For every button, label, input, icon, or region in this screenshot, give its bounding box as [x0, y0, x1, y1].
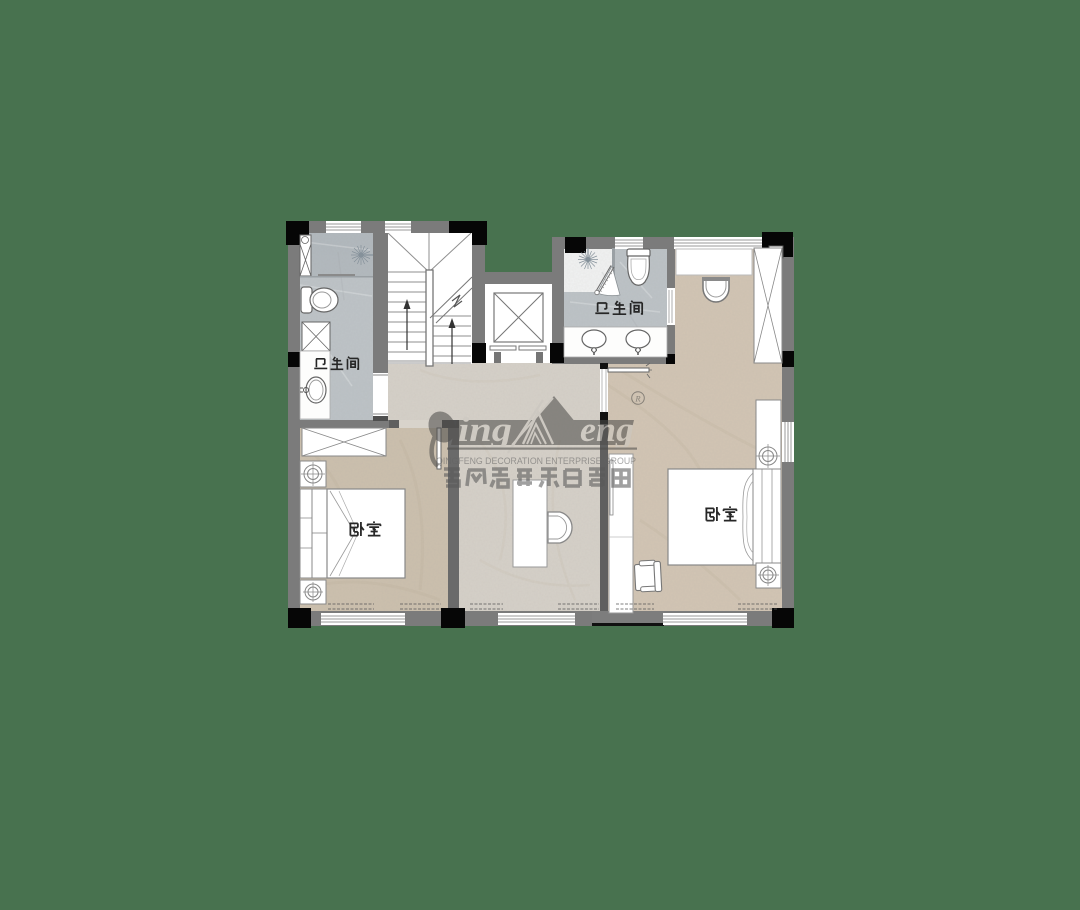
svg-text:QINGFENG DECORATION ENTERPRI: QINGFENG DECORATION ENTERPRISE GROUP — [436, 456, 636, 467]
svg-text:ing: ing — [458, 410, 512, 449]
svg-text:eng: eng — [580, 410, 634, 449]
svg-text:R: R — [634, 394, 641, 404]
